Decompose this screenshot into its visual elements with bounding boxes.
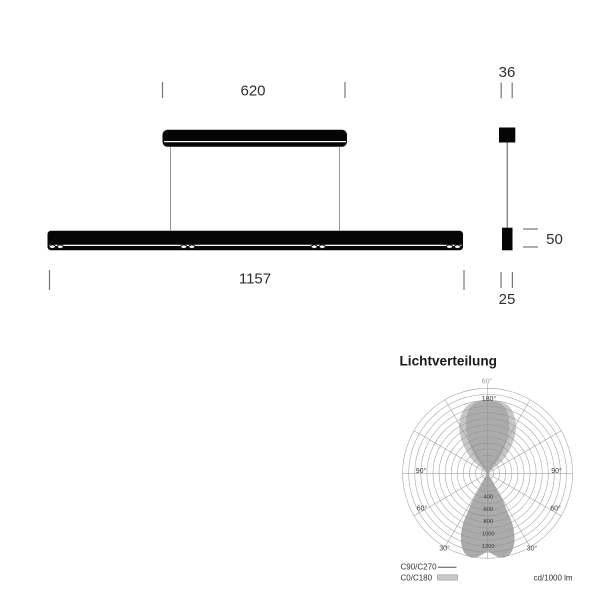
svg-text:Lichtverteilung: Lichtverteilung: [400, 353, 497, 368]
svg-text:800: 800: [483, 519, 493, 525]
svg-text:1000: 1000: [482, 532, 495, 538]
svg-text:600: 600: [483, 507, 493, 513]
svg-text:620: 620: [240, 83, 265, 100]
svg-text:90°: 90°: [551, 467, 562, 475]
svg-text:60°: 60°: [550, 505, 561, 513]
svg-text:180°: 180°: [482, 395, 497, 403]
svg-text:90°: 90°: [416, 467, 427, 475]
svg-text:30°: 30°: [439, 545, 450, 553]
svg-text:50: 50: [546, 231, 563, 248]
svg-text:C0/C180: C0/C180: [401, 574, 433, 583]
svg-text:30°: 30°: [527, 545, 538, 553]
svg-text:C90/C270: C90/C270: [401, 563, 438, 572]
svg-text:25: 25: [499, 291, 516, 308]
svg-text:36: 36: [499, 64, 516, 81]
svg-text:1200: 1200: [482, 544, 495, 550]
svg-text:60°: 60°: [417, 505, 428, 513]
svg-text:1157: 1157: [239, 271, 271, 288]
svg-text:60°: 60°: [482, 378, 493, 386]
svg-text:400: 400: [483, 494, 493, 500]
svg-text:cd/1000 lm: cd/1000 lm: [533, 574, 572, 583]
